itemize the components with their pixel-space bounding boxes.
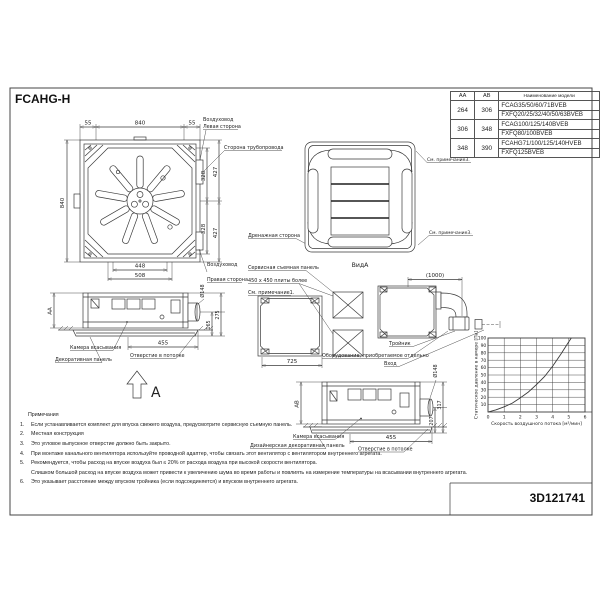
notes-section: Примечания 1.Если устанавливается компле… (20, 412, 576, 488)
note-number: 2. (20, 431, 31, 437)
note-number: 1. (20, 422, 31, 428)
air-outlet-right (402, 169, 412, 233)
air-outlet-bottom (328, 237, 392, 247)
dim-1000: (1000) (426, 273, 444, 279)
dim-508: 508 (135, 273, 146, 279)
note-text: Слишком большой расход на впуске воздуха… (31, 470, 576, 476)
y-tick: 60 (481, 365, 487, 371)
dim-448: 448 (135, 264, 146, 270)
note-item: 2.Местная конструкция (20, 431, 576, 437)
dim-328-upper: 328 (201, 170, 207, 181)
dim-455: 455 (158, 341, 169, 347)
note-number: 4. (20, 451, 31, 457)
note-number (20, 470, 31, 476)
dim-427-lower: 427 (213, 227, 219, 238)
air-outlet-left (308, 169, 318, 233)
note-text: Рекомендуется, чтобы расход на впуске во… (31, 460, 576, 466)
drawing-canvas: 55 840 55 840 328 427 328 427 448 508 Во… (0, 0, 600, 600)
label-inlet: Вход (384, 361, 397, 367)
y-tick: 90 (481, 343, 487, 349)
label-tee: Тройник (388, 340, 411, 347)
drawing-number: 3D121741 (450, 491, 585, 505)
label-note1: См. примечание1. (248, 290, 295, 296)
note-item: 5.Рекомендуется, чтобы расход на впуске … (20, 460, 576, 466)
note-number: 6. (20, 479, 31, 485)
tee-fitting (449, 317, 469, 330)
cassette-panel-view: См. примечание3. См. примечание3. ВидА (305, 142, 473, 269)
note-item: 4.При монтаже канального вентилятора исп… (20, 451, 576, 457)
y-tick: 80 (481, 350, 487, 356)
dim-duct-diameter: Ø148 (199, 284, 206, 297)
label-view-a: ВидА (352, 262, 370, 269)
dim-55-left: 55 (85, 121, 92, 127)
chart-y-axis-label: Статическое давление в камере [Па] (474, 331, 480, 420)
label-note3-bottom: См. примечание3. (429, 230, 472, 236)
dim-725: 725 (287, 359, 298, 365)
side-view-aa: АА 165 275 Ø148 455 Камера всасывания Де… (48, 284, 226, 401)
note-text: Местная конструкция (31, 431, 576, 437)
technical-drawing-page: { "title": "FCAHG-H", "doc_id": "3D12174… (0, 0, 600, 600)
dim-aa: АА (48, 307, 54, 315)
label-450-plates: 450 x 450 плиты более (248, 278, 307, 284)
note-item: 6.Это указывает расстояние между впуском… (20, 479, 576, 485)
air-outlet-top (328, 149, 392, 159)
duct-elbow (441, 293, 467, 317)
y-tick: 40 (481, 380, 487, 386)
label-right-side: Правая сторона (207, 277, 248, 283)
dim-duct-diameter: Ø148 (432, 364, 439, 377)
note-number: 5. (20, 460, 31, 466)
note-item: Слишком большой расход на впуске воздуха… (20, 470, 576, 476)
dim-840-left: 840 (60, 197, 66, 208)
label-decorative-panel: Декоративная панель (55, 357, 112, 363)
label-view-arrow-a: A (151, 385, 161, 401)
inlet-coupling (475, 320, 482, 330)
label-drain-side: Дренажная сторона (248, 233, 300, 239)
dim-55-right: 55 (189, 121, 196, 127)
note-number: 3. (20, 441, 31, 447)
label-separate-equipment: Оборудование, приобретаемое отдельно (322, 353, 429, 359)
plan-view (74, 137, 203, 262)
dim-275: 275 (215, 310, 221, 319)
note-text: При монтаже канального вентилятора испол… (31, 451, 576, 457)
dim-165: 165 (206, 320, 212, 329)
label-left-side: Левая сторона (203, 124, 241, 130)
plan-view-labels: Воздуховод Левая сторона Сторона трубопр… (199, 117, 310, 283)
label-note3-top: См. примечание3. (427, 157, 470, 163)
dim-ab: АВ (295, 400, 301, 408)
dim-328-lower: 328 (201, 223, 207, 234)
y-tick: 10 (481, 402, 487, 408)
dim-317: 317 (437, 400, 443, 409)
note-item: 1.Если устанавливается комплект для впус… (20, 422, 576, 428)
note-item: 3.Это угловое выпускное отверстие должно… (20, 441, 576, 447)
label-suction-chamber: Камера всасывания (70, 345, 121, 351)
view-direction-arrow (127, 371, 147, 398)
label-service-panel: Сервисная съемная панель (248, 265, 319, 271)
note-text: Если устанавливается комплект для впуска… (31, 422, 576, 428)
label-duct-top: Воздуховод (203, 117, 234, 123)
note-text: Это угловое выпускное отверстие должно б… (31, 441, 576, 447)
label-duct-bottom: Воздуховод (207, 262, 238, 268)
y-tick: 70 (481, 358, 487, 364)
x-tick: 6 (584, 415, 587, 421)
label-piping-side: Сторона трубопровода (224, 145, 284, 151)
y-tick: 50 (481, 373, 487, 379)
dim-427-upper: 427 (213, 166, 219, 177)
note-text: Это указывает расстояние между впуском т… (31, 479, 576, 485)
y-tick: 20 (481, 395, 487, 401)
notes-heading: Примечания (28, 412, 576, 418)
y-tick: 30 (481, 387, 487, 393)
dim-840-top: 840 (135, 121, 146, 127)
